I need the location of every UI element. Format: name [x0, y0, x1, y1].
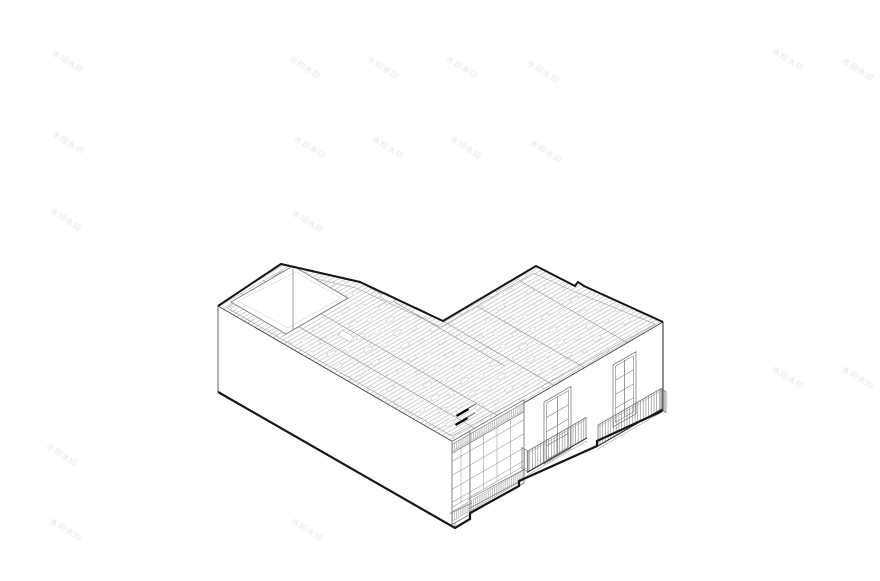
canvas: 水印水印水印水印水印水印水印水印水印水印水印水印水印水印水印水印水印水印水印水印…: [0, 0, 880, 581]
axonometric-drawing: [0, 0, 880, 581]
